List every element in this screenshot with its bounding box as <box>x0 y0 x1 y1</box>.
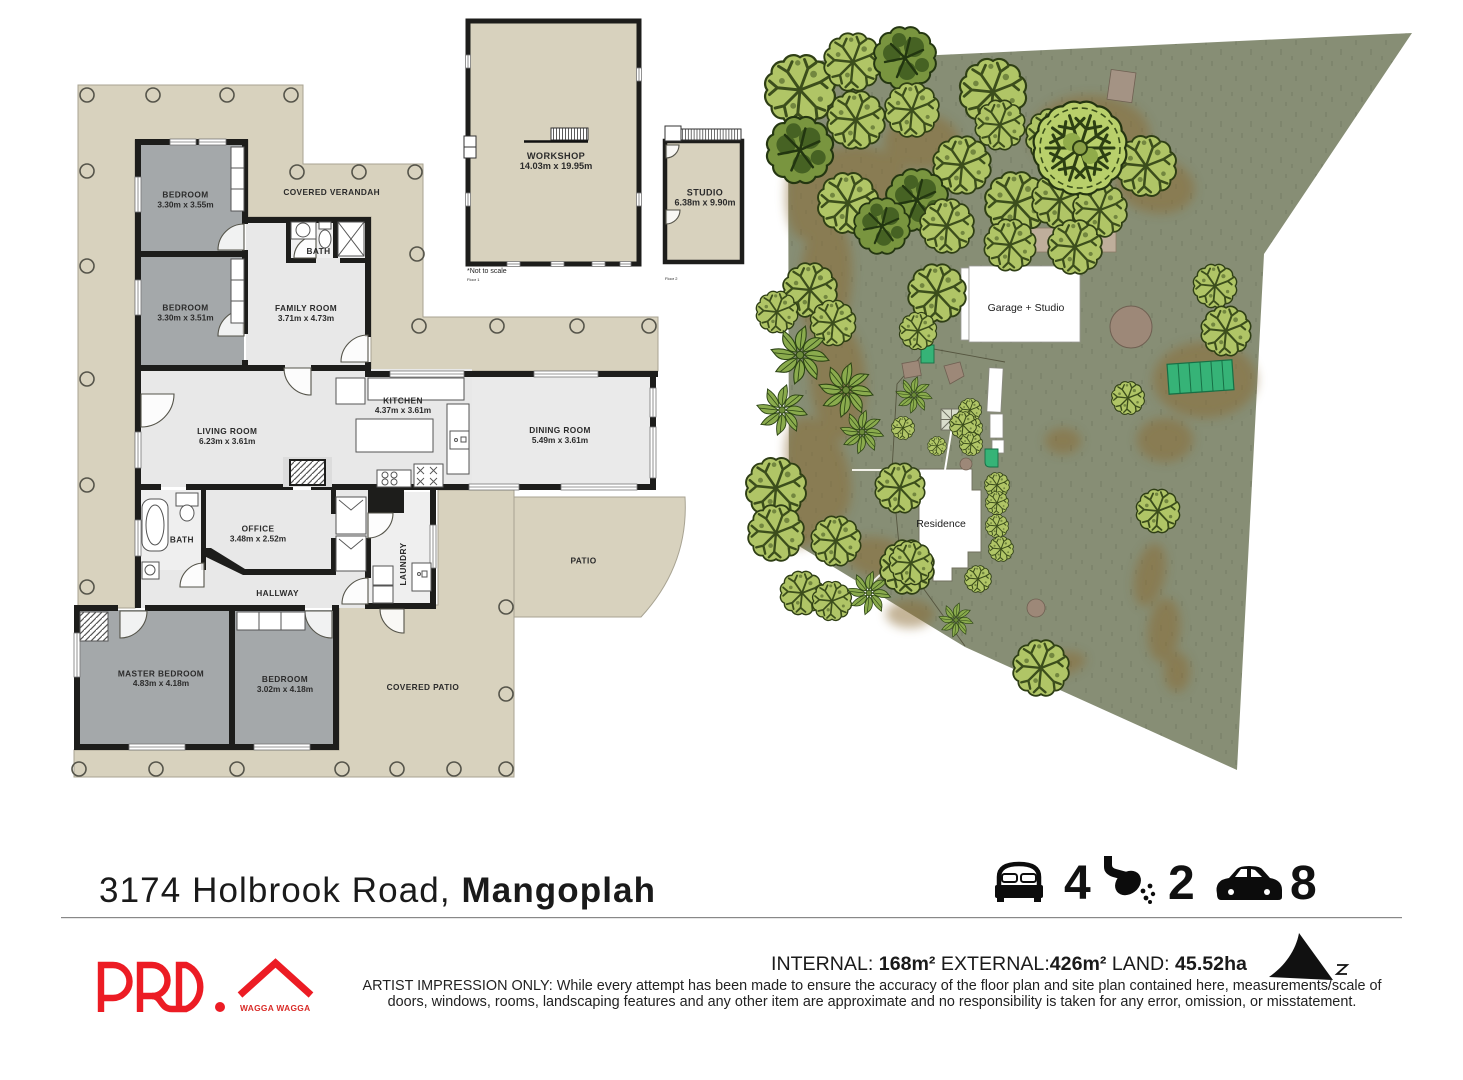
svg-text:8: 8 <box>1290 857 1317 910</box>
svg-text:*Not to scale: *Not to scale <box>467 268 507 275</box>
svg-text:LIVING ROOM: LIVING ROOM <box>197 426 257 436</box>
svg-text:COVERED PATIO: COVERED PATIO <box>387 682 460 692</box>
svg-text:COVERED VERANDAH: COVERED VERANDAH <box>283 187 380 197</box>
svg-text:14.03m x 19.95m: 14.03m x 19.95m <box>520 161 593 171</box>
svg-text:HALLWAY: HALLWAY <box>256 588 299 598</box>
svg-text:DINING ROOM: DINING ROOM <box>529 425 591 435</box>
svg-text:FAMILY ROOM: FAMILY ROOM <box>275 303 337 313</box>
svg-text:6.23m x 3.61m: 6.23m x 3.61m <box>199 436 255 446</box>
svg-text:6.38m x 9.90m: 6.38m x 9.90m <box>674 198 735 208</box>
svg-text:4: 4 <box>1064 857 1091 910</box>
svg-text:BATH: BATH <box>306 246 330 256</box>
svg-text:3174 Holbrook Road, Mangoplah: 3174 Holbrook Road, Mangoplah <box>99 871 656 910</box>
svg-text:2: 2 <box>1168 857 1195 910</box>
svg-text:4.37m x 3.61m: 4.37m x 3.61m <box>375 405 431 415</box>
svg-text:3.30m x 3.55m: 3.30m x 3.55m <box>157 199 213 209</box>
svg-text:3.02m x 4.18m: 3.02m x 4.18m <box>257 684 313 694</box>
svg-text:4.83m x 4.18m: 4.83m x 4.18m <box>133 678 189 688</box>
svg-text:BEDROOM: BEDROOM <box>262 674 308 684</box>
svg-text:3.48m x 2.52m: 3.48m x 2.52m <box>230 533 286 543</box>
svg-text:3.71m x 4.73m: 3.71m x 4.73m <box>278 313 334 323</box>
svg-text:BEDROOM: BEDROOM <box>162 303 208 313</box>
svg-text:OFFICE: OFFICE <box>242 524 275 534</box>
svg-text:doors, windows, rooms, landsca: doors, windows, rooms, landscaping featu… <box>388 994 1357 1010</box>
svg-text:Residence: Residence <box>916 518 966 530</box>
svg-text:KITCHEN: KITCHEN <box>383 395 423 405</box>
svg-text:Floor 1: Floor 1 <box>467 277 480 282</box>
svg-text:WAGGA WAGGA: WAGGA WAGGA <box>240 1003 310 1013</box>
svg-text:Floor 2: Floor 2 <box>665 276 678 281</box>
svg-text:INTERNAL: 168m² EXTERNAL:426m: INTERNAL: 168m² EXTERNAL:426m² LAND: 45.… <box>771 953 1248 975</box>
svg-text:ARTIST IMPRESSION ONLY: While: ARTIST IMPRESSION ONLY: While every atte… <box>362 978 1382 994</box>
svg-text:MASTER BEDROOM: MASTER BEDROOM <box>118 668 204 678</box>
svg-text:3.30m x 3.51m: 3.30m x 3.51m <box>157 312 213 322</box>
svg-text:Garage + Studio: Garage + Studio <box>988 302 1065 314</box>
svg-text:LAUNDRY: LAUNDRY <box>398 542 408 585</box>
svg-text:BEDROOM: BEDROOM <box>162 190 208 200</box>
svg-text:WORKSHOP: WORKSHOP <box>527 151 585 161</box>
svg-text:5.49m x 3.61m: 5.49m x 3.61m <box>532 435 588 445</box>
svg-text:PATIO: PATIO <box>570 556 596 566</box>
svg-text:BATH: BATH <box>170 535 194 545</box>
svg-text:STUDIO: STUDIO <box>687 188 723 198</box>
